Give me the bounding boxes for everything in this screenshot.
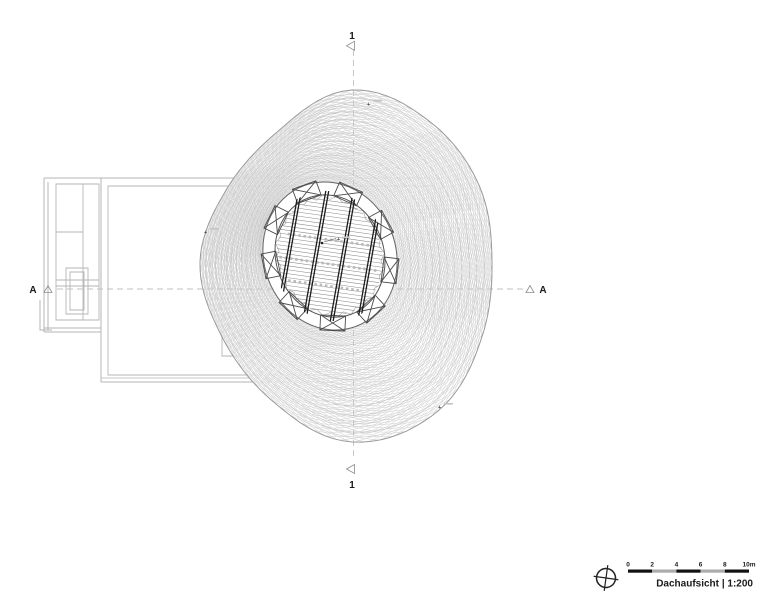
scale-tick: 4 [675, 562, 679, 569]
section-1-top-arrow-icon [347, 41, 355, 50]
section-1-top-label: 1 [349, 31, 355, 42]
section-1-bottom-arrow-icon [347, 465, 355, 474]
scale-bar: 0 2 4 6 8 10m [626, 562, 756, 573]
drawing-sheet: 1 1 A A + + [0, 0, 780, 613]
roof-plan-drawing: 1 1 A A + + [0, 0, 780, 613]
section-1-bottom-label: 1 [349, 480, 355, 491]
svg-text:+: + [438, 405, 441, 411]
drawing-title: Dachaufsicht | 1:200 [656, 579, 753, 590]
drawing-title-name: Dachaufsicht [656, 579, 719, 590]
scale-tick: 2 [650, 562, 654, 569]
section-a-right-label: A [539, 285, 546, 296]
elevation-marker: + [438, 403, 453, 411]
north-symbol-icon [592, 563, 620, 592]
scale-tick: 8 [723, 562, 727, 569]
scale-tick: 6 [699, 562, 703, 569]
center-elevation-label: + [337, 237, 340, 243]
svg-text:+: + [367, 102, 370, 108]
drawing-title-scale: | 1:200 [722, 579, 754, 590]
legend: 0 2 4 6 8 10m Dachaufsicht | 1:200 [592, 562, 756, 593]
svg-text:+: + [204, 230, 207, 236]
scale-tick: 0 [626, 562, 630, 569]
section-a-right-arrow-icon [526, 286, 534, 293]
scale-tick: 10m [742, 562, 755, 569]
section-a-left-label: A [29, 285, 36, 296]
